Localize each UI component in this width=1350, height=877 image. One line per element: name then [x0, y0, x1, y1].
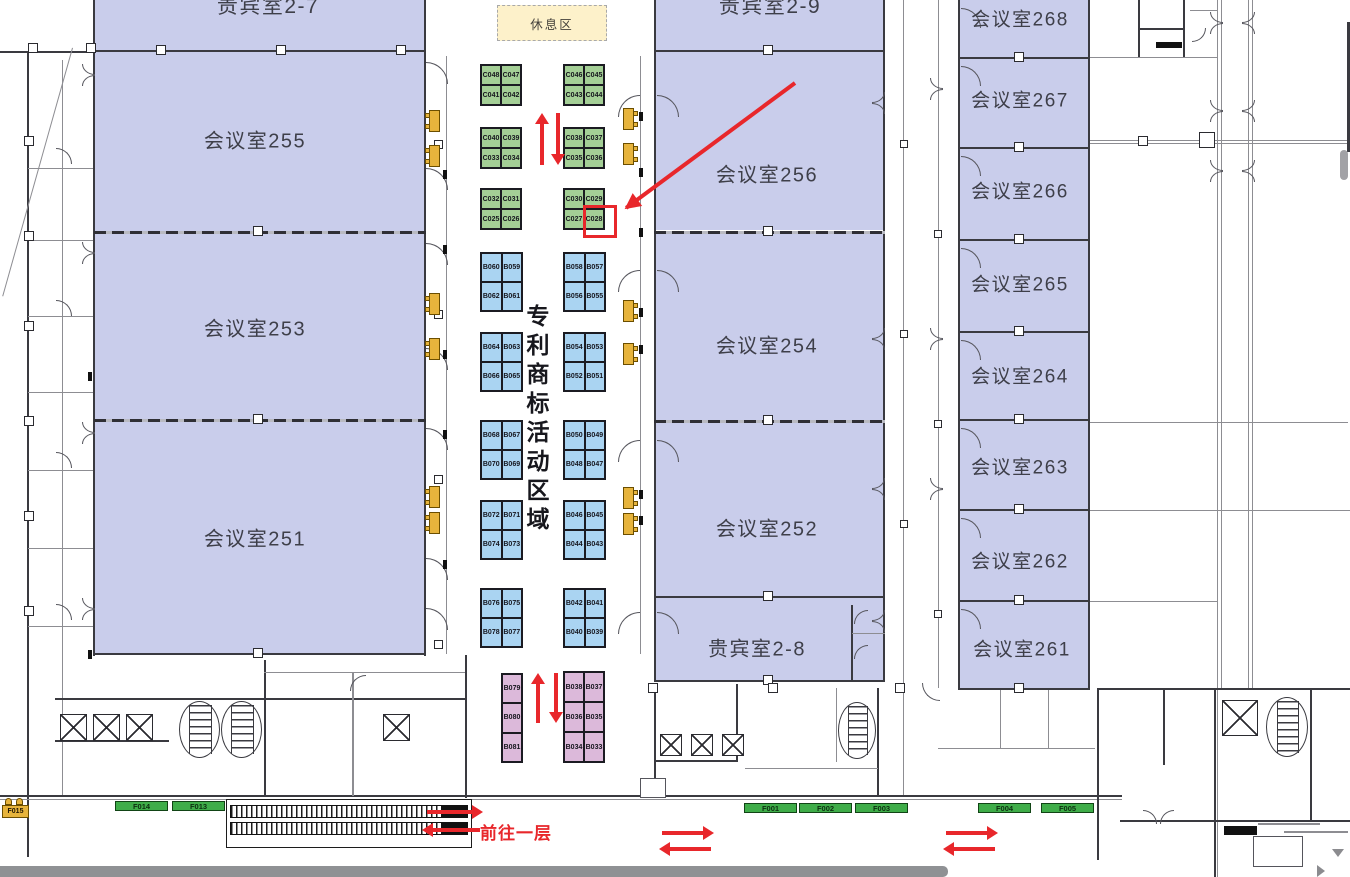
room-label-meeting-266: 会议室266	[971, 177, 1069, 204]
elevator-icon	[126, 714, 153, 741]
booth-B033: B033	[584, 732, 604, 762]
wall-column-post	[28, 43, 38, 53]
scroll-down-arrow-icon[interactable]	[1332, 849, 1344, 857]
wall-segment	[1097, 688, 1350, 690]
door-leaf	[872, 328, 885, 339]
wall-segment	[28, 240, 93, 241]
booth-C048: C048	[481, 65, 501, 85]
wall-segment	[28, 392, 93, 393]
arrow-head	[987, 826, 998, 840]
booth-block: B058B057B056B055	[563, 252, 606, 312]
door-leaf	[1242, 111, 1255, 122]
door-post	[639, 516, 643, 525]
small-room	[640, 778, 666, 798]
booth-B073: B073	[502, 530, 523, 559]
vertical-scrollbar-thumb[interactable]	[1340, 150, 1348, 180]
wall-segment	[27, 51, 29, 857]
left-arrow-icon	[943, 842, 995, 856]
stairs-icon	[838, 702, 876, 759]
floor-marker-F002: F002	[799, 803, 852, 813]
booth-C037: C037	[584, 128, 604, 148]
booth-block: C048C047C041C042	[480, 64, 522, 106]
door-arc-icon	[56, 452, 72, 468]
booth-block: B079B080B081	[501, 673, 523, 763]
wall-column-post	[763, 591, 773, 601]
double-door-icon	[930, 78, 943, 100]
floor-marker-F001: F001	[744, 803, 797, 813]
door-leaf	[82, 75, 95, 86]
scroll-right-arrow-icon[interactable]	[1317, 865, 1325, 877]
tag-bump	[425, 307, 430, 312]
room-label-meeting-255: 会议室255	[204, 125, 306, 154]
booth-B070: B070	[481, 450, 502, 479]
wall-column-post	[253, 648, 263, 658]
door-leaf	[930, 339, 943, 350]
double-door-icon	[82, 598, 95, 620]
arrow-shaft	[662, 831, 704, 836]
arrow-shaft	[540, 123, 545, 165]
wall-segment	[836, 688, 837, 762]
door-post	[443, 560, 447, 569]
door-leaf	[82, 64, 95, 75]
tag-bump	[425, 526, 430, 531]
wall-segment	[938, 748, 1095, 749]
door-leaf	[1242, 160, 1255, 171]
wall-segment	[1090, 601, 1217, 602]
booth-C044: C044	[584, 85, 604, 105]
booth-block: C040C039C033C034	[480, 127, 522, 169]
door-post	[639, 112, 643, 121]
booth-block: B076B075B078B077	[480, 588, 523, 648]
door-leaf	[930, 489, 943, 500]
wall-segment	[1156, 42, 1182, 48]
wall-segment	[264, 660, 266, 796]
booth-block: B050B049B048B047	[563, 420, 606, 480]
door-leaf	[1210, 160, 1223, 171]
double-door-icon	[872, 328, 885, 350]
booth-block: C032C031C025C026	[480, 188, 522, 230]
right-arrow-icon	[662, 826, 714, 840]
arrow-shaft	[669, 847, 711, 852]
wall-column-post	[24, 136, 34, 146]
booth-block: B060B059B062B061	[480, 252, 523, 312]
floor-marker-F004: F004	[978, 803, 1031, 813]
wall-segment	[264, 672, 465, 673]
door-leaf	[872, 478, 885, 489]
door-leaf	[872, 339, 885, 350]
booth-B081: B081	[502, 733, 522, 762]
room-meeting-252	[655, 422, 884, 596]
wall-column-post	[934, 230, 942, 238]
wall-segment	[1090, 143, 1350, 144]
wall-column-post	[24, 231, 34, 241]
booth-B068: B068	[481, 421, 502, 450]
door-leaf	[872, 489, 885, 500]
booth-C035: C035	[564, 148, 584, 168]
wall-column-post	[1014, 595, 1024, 605]
wall-segment	[93, 0, 95, 656]
room-label-meeting-265: 会议室265	[971, 270, 1069, 297]
booth-B037: B037	[584, 672, 604, 702]
booth-C039: C039	[501, 128, 521, 148]
wall-segment	[958, 688, 1090, 690]
wall-column-post	[24, 606, 34, 616]
booth-C027: C027	[564, 209, 584, 229]
activity-zone-vertical-label: 专利商标活动区域	[524, 302, 552, 534]
door-leaf	[1242, 100, 1255, 111]
wall-column-post	[934, 610, 942, 618]
wall-segment	[0, 799, 1122, 800]
activity-zone-char: 专	[524, 302, 552, 331]
door-leaf	[1242, 171, 1255, 182]
tag-bump	[633, 111, 638, 116]
rest-area: 休息区	[497, 5, 607, 41]
tag-bump	[633, 357, 638, 362]
wall-column-post	[156, 45, 166, 55]
right-arrow-icon	[427, 805, 483, 819]
wall-column-post	[763, 45, 773, 55]
activity-zone-char: 动	[524, 447, 552, 476]
wall-column-post	[1014, 234, 1024, 244]
rest-area-label: 休息区	[530, 14, 574, 33]
wall-segment	[958, 0, 960, 690]
wall-segment	[28, 470, 93, 471]
floor-marker-F015: F015	[2, 805, 29, 818]
booth-block: B068B067B070B069	[480, 420, 523, 480]
wall-booth-tag-icon	[429, 512, 440, 534]
door-leaf	[930, 328, 943, 339]
arrow-head	[551, 154, 565, 165]
double-door-icon	[872, 610, 885, 632]
door-leaf	[930, 78, 943, 89]
tag-bump	[16, 798, 23, 805]
booth-C047: C047	[501, 65, 521, 85]
stairs-icon	[179, 701, 220, 758]
door-leaf	[82, 598, 95, 609]
door-post	[639, 345, 643, 354]
arrow-shaft	[953, 847, 995, 852]
door-arc-icon	[426, 608, 448, 630]
wall-column-post	[1014, 504, 1024, 514]
wall-segment	[1097, 688, 1099, 860]
booth-B053: B053	[585, 333, 606, 362]
wall-segment	[958, 600, 1090, 602]
booth-B077: B077	[502, 618, 523, 647]
booth-block: C046C045C043C044	[563, 64, 605, 106]
door-post	[443, 350, 447, 359]
wall-booth-tag-icon	[623, 487, 634, 509]
double-door-icon	[930, 478, 943, 500]
up-arrow-icon	[535, 113, 549, 165]
tag-bump	[425, 352, 430, 357]
door-post	[88, 650, 92, 659]
wall-column-post	[253, 414, 263, 424]
room-label-meeting-253: 会议室253	[204, 313, 306, 342]
wall-column-post	[763, 226, 773, 236]
booth-B059: B059	[502, 253, 523, 282]
room-label-meeting-261: 会议室261	[973, 635, 1071, 662]
wall-segment	[1090, 140, 1350, 141]
door-arc-icon	[56, 604, 72, 620]
door-leaf	[872, 621, 885, 632]
double-door-icon	[1242, 100, 1255, 122]
booth-B046: B046	[564, 501, 585, 530]
booth-C042: C042	[501, 85, 521, 105]
door-post	[88, 372, 92, 381]
booth-B042: B042	[564, 589, 585, 618]
booth-B035: B035	[584, 702, 604, 732]
door-arc-icon	[1192, 28, 1206, 42]
room-label-vip-2-9: 贵宾室2-9	[719, 0, 821, 20]
tag-bump	[425, 489, 430, 494]
stairs-steps	[848, 706, 869, 754]
wall-segment	[1310, 688, 1312, 820]
booth-B065: B065	[502, 362, 523, 391]
arrow-head	[472, 805, 483, 819]
booth-B034: B034	[564, 732, 584, 762]
booth-B071: B071	[502, 501, 523, 530]
tag-bump	[633, 516, 638, 521]
floor-marker-F014: F014	[115, 801, 168, 811]
wall-segment	[0, 51, 96, 53]
booth-B047: B047	[585, 450, 606, 479]
activity-zone-char: 利	[524, 331, 552, 360]
double-door-icon	[930, 328, 943, 350]
door-arc-icon	[56, 148, 72, 164]
floor-marker-F003: F003	[855, 803, 908, 813]
door-arc-icon	[56, 300, 72, 316]
booth-B080: B080	[502, 703, 522, 732]
door-leaf	[1242, 23, 1255, 34]
wall-column-post	[1014, 326, 1024, 336]
double-door-icon	[1242, 160, 1255, 182]
wall-column-post	[86, 43, 96, 53]
door-post	[443, 245, 447, 254]
wall-column-post	[1014, 142, 1024, 152]
wall-column-post	[24, 321, 34, 331]
wall-segment	[958, 331, 1090, 333]
booth-B036: B036	[564, 702, 584, 732]
wall-segment	[1090, 57, 1218, 58]
booth-B043: B043	[585, 530, 606, 559]
booth-B074: B074	[481, 530, 502, 559]
wall-column-post	[895, 683, 905, 693]
wall-segment	[1088, 0, 1090, 690]
wall-segment	[28, 316, 93, 317]
floor-marker-F013: F013	[172, 801, 225, 811]
room-label-meeting-267: 会议室267	[971, 86, 1069, 113]
room-label-vip-2-7: 贵宾室2-7	[217, 0, 319, 20]
booth-C033: C033	[481, 148, 501, 168]
wall-booth-tag-icon	[623, 108, 634, 130]
door-arc-icon	[618, 270, 640, 292]
booth-block: C038C037C035C036	[563, 127, 605, 169]
door-leaf	[930, 89, 943, 100]
double-door-icon	[872, 92, 885, 114]
wall-segment	[1284, 831, 1348, 833]
booth-B069: B069	[502, 450, 523, 479]
door-leaf	[82, 609, 95, 620]
wall-segment	[654, 760, 738, 762]
room-label-vip-2-8: 贵宾室2-8	[708, 633, 806, 662]
door-leaf	[1242, 12, 1255, 23]
door-leaf	[82, 422, 95, 433]
booth-C031: C031	[501, 189, 521, 209]
wall-column-post	[768, 683, 778, 693]
door-leaf	[1210, 100, 1223, 111]
tag-bump	[633, 157, 638, 162]
wall-segment	[958, 419, 1090, 421]
wall-segment	[958, 239, 1090, 241]
wall-column-post	[1199, 132, 1215, 148]
tag-bump	[633, 490, 638, 495]
activity-zone-char: 标	[524, 389, 552, 418]
double-door-icon	[82, 242, 95, 264]
wall-column-post	[434, 475, 443, 484]
tag-bump	[425, 500, 430, 505]
escalator-icon	[230, 822, 442, 835]
booth-B054: B054	[564, 333, 585, 362]
horizontal-scrollbar[interactable]	[0, 866, 948, 877]
booth-C026: C026	[501, 209, 521, 229]
wall-segment	[28, 626, 93, 627]
elevator-icon	[660, 734, 682, 756]
tag-bump	[633, 346, 638, 351]
stairs-icon	[1266, 697, 1308, 757]
down-arrow-icon	[549, 673, 563, 723]
floor-marker-F005: F005	[1041, 803, 1094, 813]
left-arrow-icon	[659, 842, 711, 856]
booth-C046: C046	[564, 65, 584, 85]
door-leaf	[872, 610, 885, 621]
wall-column-post	[24, 511, 34, 521]
door-leaf	[1210, 12, 1223, 23]
booth-B058: B058	[564, 253, 585, 282]
double-door-icon	[1210, 100, 1223, 122]
activity-zone-char: 域	[524, 505, 552, 534]
tag-bump	[633, 527, 638, 532]
stairs-steps	[189, 705, 211, 753]
wall-segment	[1048, 690, 1049, 748]
elevator-icon	[691, 734, 713, 756]
arrow-head	[620, 193, 642, 215]
elevator-icon	[383, 714, 410, 741]
activity-zone-char: 商	[524, 360, 552, 389]
wall-booth-tag-icon	[429, 110, 440, 132]
wall-column-post	[1138, 136, 1148, 146]
door-post	[639, 490, 643, 499]
booth-B039: B039	[585, 618, 606, 647]
booth-block: B072B071B074B073	[480, 500, 523, 560]
wall-booth-tag-icon	[623, 513, 634, 535]
arrow-shaft	[432, 828, 480, 833]
room-label-meeting-251: 会议室251	[204, 523, 306, 552]
booth-C038: C038	[564, 128, 584, 148]
door-leaf	[1210, 171, 1223, 182]
wall-booth-tag-icon	[623, 143, 634, 165]
small-room	[1253, 836, 1303, 867]
room-label-meeting-256: 会议室256	[716, 159, 818, 188]
wall-segment	[1163, 688, 1165, 765]
door-arc-icon	[1143, 810, 1157, 824]
wall-column-post	[648, 683, 658, 693]
booth-B057: B057	[585, 253, 606, 282]
wall-segment	[1214, 688, 1216, 877]
double-door-icon	[82, 64, 95, 86]
elevator-icon	[722, 734, 744, 756]
wall-column-post	[1014, 52, 1024, 62]
arrow-shaft	[427, 810, 473, 815]
wall-segment	[28, 548, 93, 549]
door-leaf	[1210, 23, 1223, 34]
wall-segment	[852, 633, 885, 634]
booth-C030: C030	[564, 189, 584, 209]
tag-bump	[5, 798, 12, 805]
booth-B066: B066	[481, 362, 502, 391]
right-arrow-icon	[946, 826, 998, 840]
booth-C040: C040	[481, 128, 501, 148]
wall-segment	[1138, 28, 1185, 30]
booth-block: B064B063B066B065	[480, 332, 523, 392]
wall-segment	[958, 57, 1090, 59]
room-label-meeting-254: 会议室254	[716, 330, 818, 359]
door-leaf	[1210, 111, 1223, 122]
wall-column-post	[253, 226, 263, 236]
door-leaf	[82, 242, 95, 253]
door-leaf	[82, 433, 95, 444]
booth-C041: C041	[481, 85, 501, 105]
booth-B075: B075	[502, 589, 523, 618]
door-post	[639, 228, 643, 237]
tag-bump	[633, 146, 638, 151]
left-arrow-icon	[422, 823, 480, 837]
booth-B062: B062	[481, 282, 502, 311]
booth-C034: C034	[501, 148, 521, 168]
wall-segment	[1217, 0, 1218, 877]
booth-B056: B056	[564, 282, 585, 311]
door-arc-icon	[618, 612, 640, 634]
wall-segment	[1190, 10, 1217, 11]
stairs-icon	[221, 701, 262, 758]
tag-bump	[633, 122, 638, 127]
wall-booth-tag-icon	[623, 343, 634, 365]
wall-column-post	[24, 416, 34, 426]
door-leaf	[82, 253, 95, 264]
wall-segment	[62, 60, 63, 797]
booth-B052: B052	[564, 362, 585, 391]
booth-B079: B079	[502, 674, 522, 703]
arrow-shaft	[946, 831, 988, 836]
wall-column-post	[1014, 414, 1024, 424]
activity-zone-char: 区	[524, 476, 552, 505]
booth-B061: B061	[502, 282, 523, 311]
wall-booth-tag-icon	[429, 293, 440, 315]
wall-column-post	[900, 520, 908, 528]
booth-B055: B055	[585, 282, 606, 311]
wall-segment	[1258, 823, 1320, 825]
booth-C043: C043	[564, 85, 584, 105]
wall-segment	[465, 655, 467, 798]
tag-bump	[425, 113, 430, 118]
booth-B072: B072	[481, 501, 502, 530]
booth-B041: B041	[585, 589, 606, 618]
door-leaf	[872, 103, 885, 114]
room-meeting-254	[655, 232, 884, 420]
booth-B040: B040	[564, 618, 585, 647]
highlight-rect-booth-C028	[583, 205, 617, 238]
booth-B060: B060	[481, 253, 502, 282]
wall-segment	[877, 688, 879, 796]
